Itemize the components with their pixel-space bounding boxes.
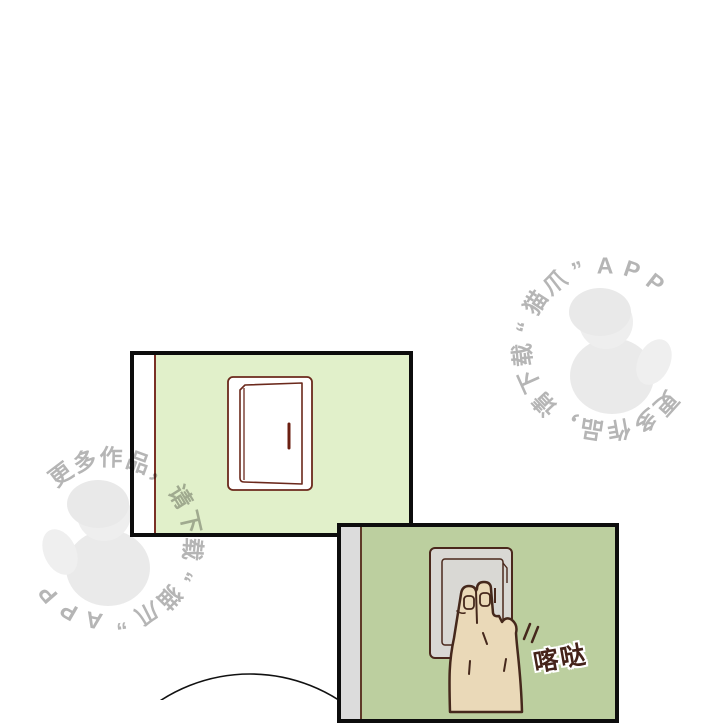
door-drawing	[134, 355, 409, 533]
motion-lines	[524, 624, 538, 642]
comic-panel-switch: 喀哒	[337, 523, 619, 723]
hand-on-switch-drawing	[341, 527, 615, 727]
comic-panel-door	[130, 351, 413, 537]
